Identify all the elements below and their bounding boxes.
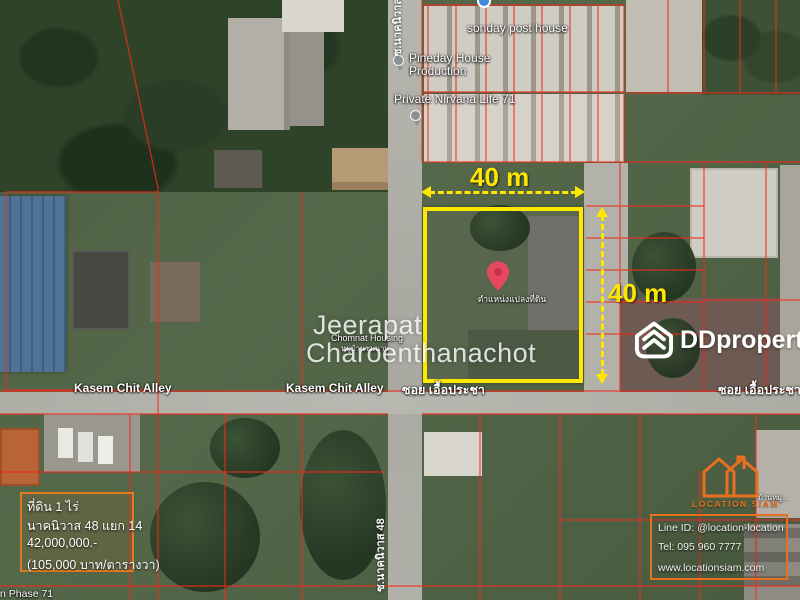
listing-location: นาคนิวาส 48 แยก 14	[27, 516, 142, 536]
poi-sonday-label: sonday post house	[467, 21, 568, 35]
plot-marker-label: ตำแหน่งแปลงที่ดิน	[462, 292, 562, 306]
location-siam-logo-text: LOCATION SIAM	[692, 499, 768, 509]
location-pin-icon	[487, 261, 509, 291]
vehicle-white	[78, 432, 93, 462]
road-label-soi-center: ซอย เอื้อประชา	[402, 380, 485, 400]
poi-pin-blue-icon	[477, 0, 491, 8]
tree	[210, 418, 280, 478]
building-block-topright	[626, 0, 702, 92]
building-shed-dark	[214, 150, 262, 188]
building-blue-roof	[0, 196, 66, 372]
watermark-line2: Charoenthanachot	[306, 338, 536, 369]
terrain-grey-pad	[44, 414, 140, 472]
building-shed-tan	[332, 148, 388, 190]
tree	[470, 205, 530, 251]
height-arrow-top-head	[596, 207, 608, 217]
width-arrow-left-head	[421, 186, 431, 198]
parcel-grid-lines	[0, 0, 800, 600]
agency-line-id: Line ID: @location-location	[658, 522, 784, 534]
road-label-kasem-left: Kasem Chit Alley	[74, 381, 172, 395]
listing-price-per-unit: (105,000 บาท/ตารางวา)	[27, 555, 160, 575]
road-label-nakniwat-top-vertical: ซ.นาคนิวาส	[388, 0, 406, 72]
agency-tel: Tel: 095 960 7777	[658, 541, 742, 553]
tree	[150, 482, 260, 592]
poi-phase71-label: n Phase 71	[0, 588, 53, 600]
poi-pineday-label-line1: Pineday House	[409, 51, 490, 65]
road-label-nakniwat-vertical: ซ.นาคนิวาส 48	[371, 505, 389, 600]
location-siam-logo-icon	[694, 452, 766, 498]
poi-pin-grey-icon	[410, 110, 421, 121]
watermark-line1: Jeerapat	[313, 310, 422, 341]
terrain-trees-topright	[702, 0, 800, 95]
building-dark-roof	[72, 250, 130, 330]
terrain-forest	[0, 0, 392, 192]
vehicle-white	[58, 428, 73, 458]
building-white-roof-top	[282, 0, 344, 32]
building-apartment-right	[290, 30, 324, 126]
listing-area: ที่ดิน 1 ไร่	[27, 497, 79, 517]
poi-pineday-label-line2: Production	[409, 64, 466, 78]
road-label-soi-right: ซอย เอื้อประชา	[718, 380, 800, 400]
width-measurement-label: 40 m	[470, 162, 529, 193]
road-vertical	[388, 0, 422, 600]
building-orange-roof	[0, 428, 40, 486]
road-label-kasem-center: Kasem Chit Alley	[286, 381, 384, 395]
width-arrow-right-head	[575, 186, 585, 198]
building-brown-house	[150, 262, 200, 322]
building-white-bottom	[424, 432, 482, 476]
listing-price: 42,000,000.-	[27, 536, 97, 550]
agency-website: www.locationsiam.com	[658, 562, 764, 574]
ddproperty-logo-text: DDproperty	[680, 326, 800, 355]
building-townhouse-row-1	[424, 6, 624, 92]
height-measurement-label: 40 m	[608, 278, 667, 309]
road-horizontal	[0, 392, 800, 414]
building-right-edge	[780, 165, 800, 393]
ddproperty-logo-icon	[633, 320, 675, 360]
vehicle-white	[98, 436, 113, 464]
building-apartment-left	[228, 18, 290, 130]
building-grey-roof-right	[690, 168, 778, 258]
poi-nirvana-label: Private Nirvana Life 71	[394, 92, 515, 106]
height-arrow-line	[601, 215, 604, 375]
height-arrow-bottom-head	[596, 374, 608, 384]
satellite-map: 40 m 40 m ตำแหน่งแปลงที่ดิน sonday post …	[0, 0, 800, 600]
